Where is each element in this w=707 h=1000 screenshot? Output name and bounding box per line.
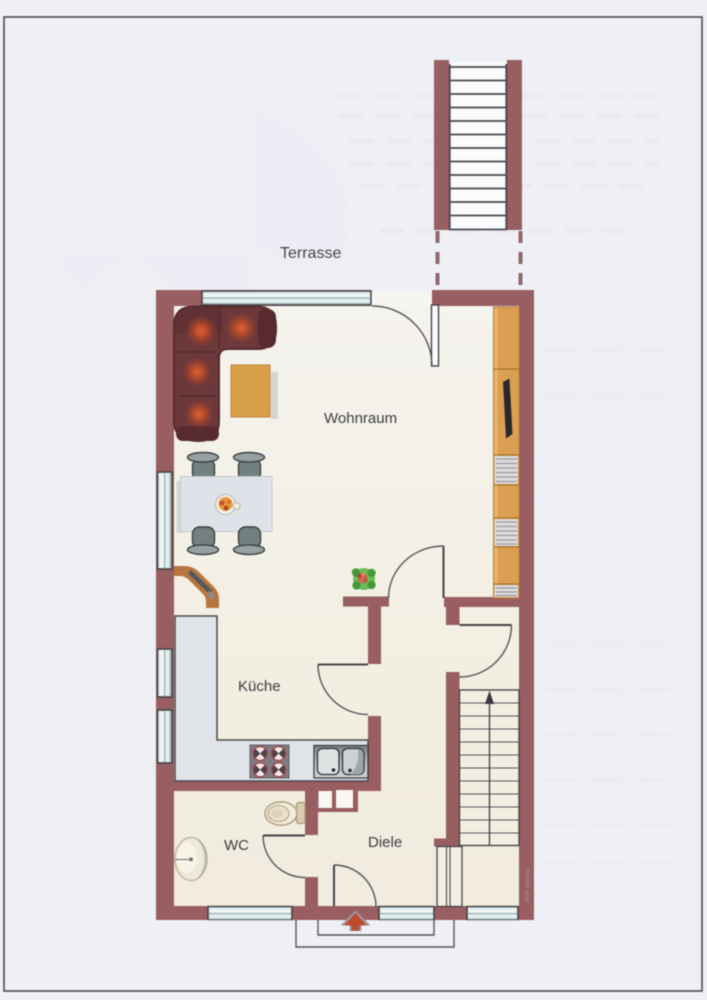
svg-text:Terrasse: Terrasse — [280, 245, 341, 262]
svg-text:WC: WC — [224, 837, 249, 854]
svg-text:Wohnraum: Wohnraum — [324, 410, 397, 427]
svg-text:Küche: Küche — [238, 678, 281, 695]
svg-text:MGF planung: MGF planung — [525, 869, 531, 902]
svg-text:Diele: Diele — [368, 834, 402, 851]
